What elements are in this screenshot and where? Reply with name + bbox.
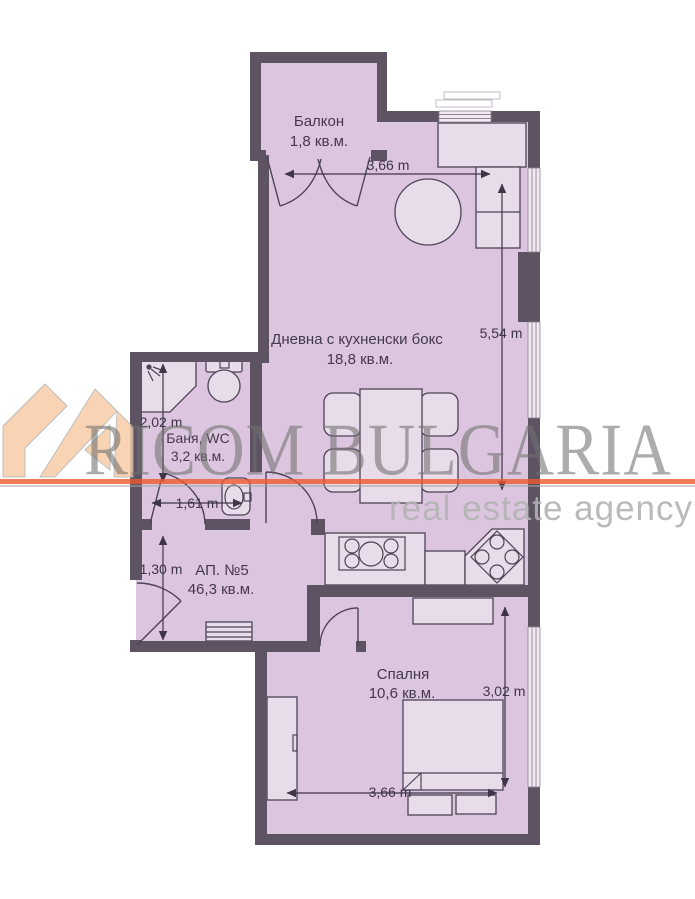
wardrobe [267,697,297,800]
dimension-label: 3,66 m [367,157,410,173]
bed-bench [456,795,496,814]
living-area: 18,8 кв.м. [327,351,394,368]
floor-plan: 3,66 m 5,54 m 2,02 m 1,61 m 1,30 m 3,02 … [0,0,695,899]
round-table [395,179,461,245]
hall-cabinet [206,622,252,641]
bathroom-sink [222,478,251,515]
living-label: Дневна с кухненски бокс [271,331,443,348]
dresser [413,598,493,624]
window [439,111,491,122]
chair [420,449,458,492]
balcony-area: 1,8 кв.м. [290,133,348,150]
dimension-label: 3,02 m [483,683,526,699]
bed [403,700,503,790]
bedroom-label: Спалня [377,666,429,683]
bedroom-area: 10,6 кв.м. [369,685,436,702]
dimension-label: 3,66 m [369,784,412,800]
chair [420,393,458,436]
bathroom-area: 3,2 кв.м. [171,448,225,464]
floorplan-image: 3,66 m 5,54 m 2,02 m 1,61 m 1,30 m 3,02 … [0,0,695,899]
chair [324,393,362,436]
window [528,627,540,787]
window-sill [436,100,492,107]
dimension-label: 1,61 m [176,495,219,511]
bed-bench [408,795,452,815]
window [528,322,540,418]
apartment-label: АП. №5 [195,562,248,579]
bathroom-label: Баня, WC [166,430,229,446]
dimension-label: 2,02 m [140,414,183,430]
chair [324,449,362,492]
dimension-label: 1,30 m [140,561,183,577]
apartment-area: 46,3 кв.м. [188,581,255,598]
balcony-label: Балкон [294,113,344,130]
dimension-label: 5,54 m [480,325,523,341]
window [528,168,540,252]
window-sill [444,92,500,99]
toilet [206,358,242,402]
